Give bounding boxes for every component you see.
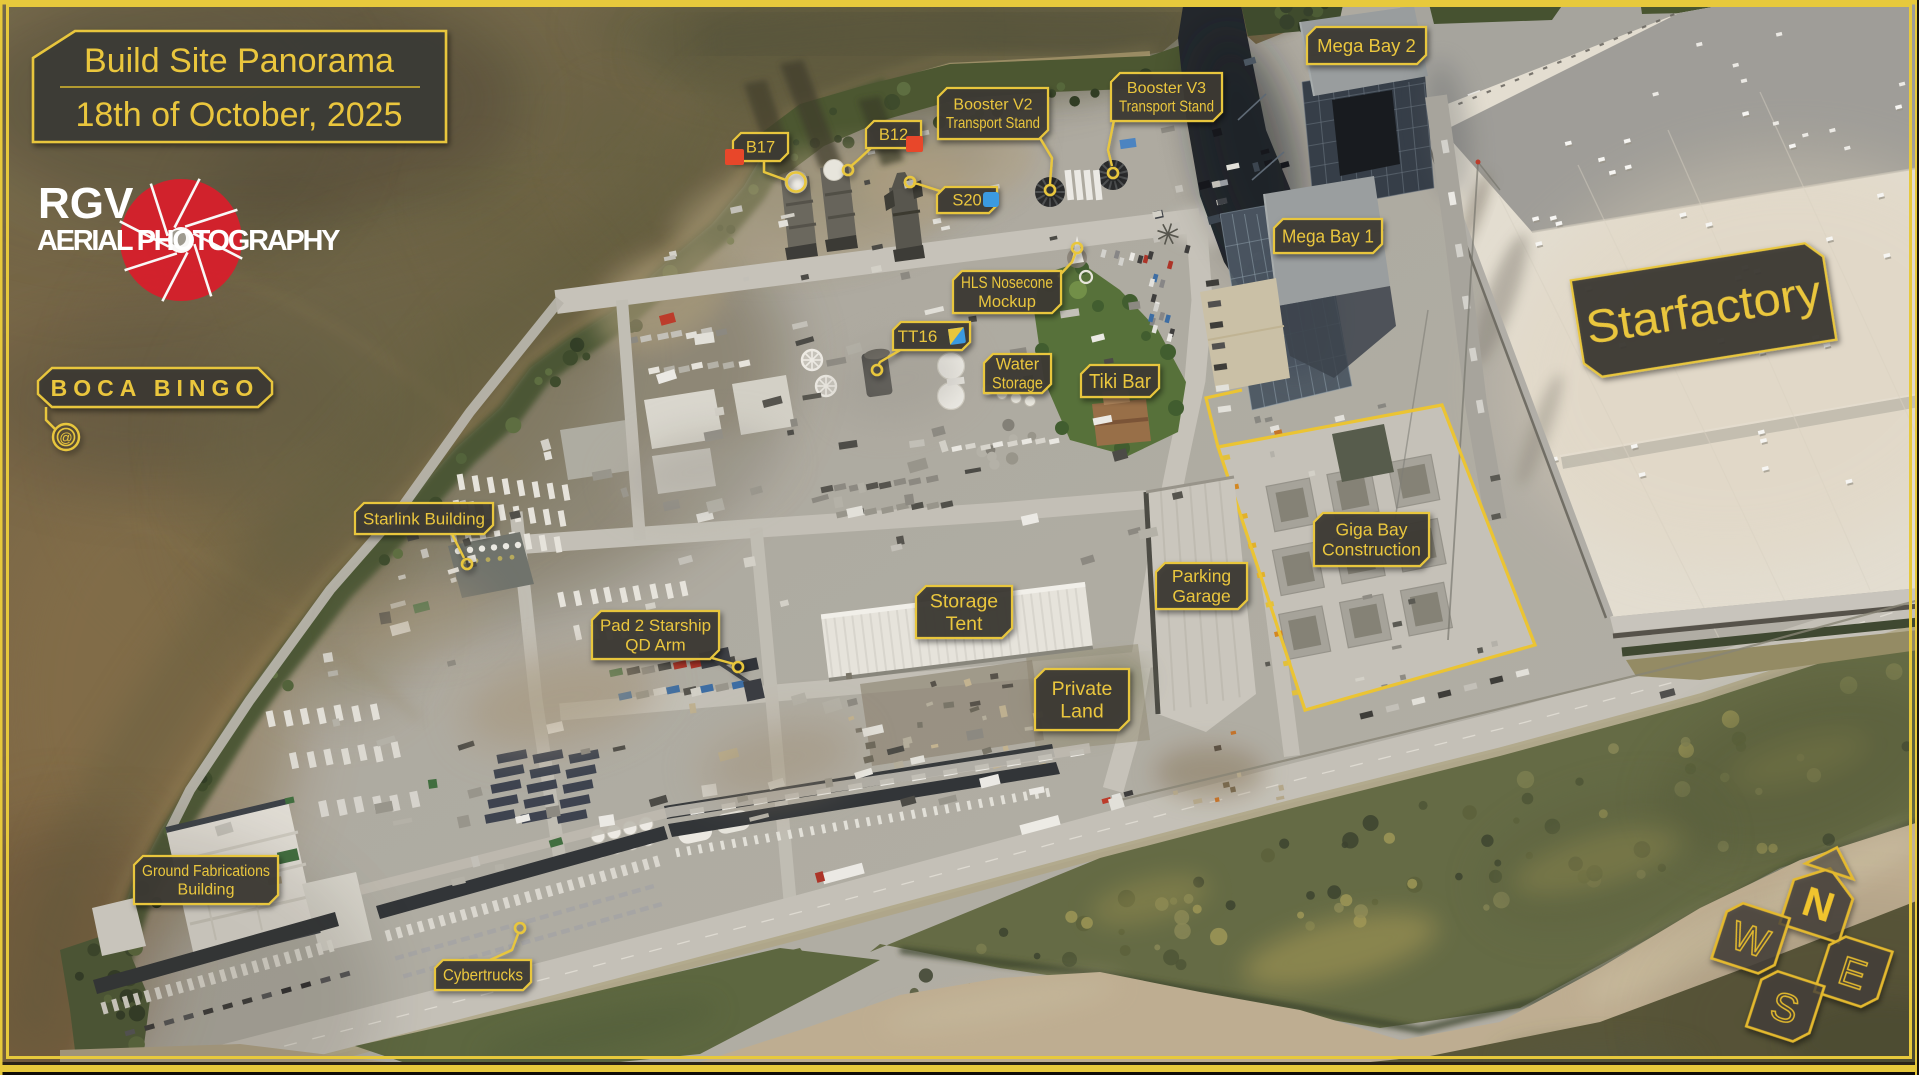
- svg-text:Construction: Construction: [1322, 540, 1421, 560]
- svg-text:Tiki Bar: Tiki Bar: [1089, 371, 1151, 393]
- svg-text:Ground Fabrications: Ground Fabrications: [142, 863, 270, 880]
- svg-text:Water: Water: [996, 356, 1040, 374]
- svg-text:RGV: RGV: [38, 179, 134, 228]
- svg-text:Garage: Garage: [1172, 586, 1230, 606]
- svg-text:18th of October, 2025: 18th of October, 2025: [75, 96, 402, 134]
- svg-text:Land: Land: [1060, 700, 1103, 722]
- svg-text:TT16: TT16: [898, 327, 938, 346]
- svg-text:QD Arm: QD Arm: [625, 636, 685, 655]
- svg-text:Booster V3: Booster V3: [1127, 80, 1206, 97]
- svg-text:Starlink Building: Starlink Building: [363, 509, 485, 528]
- svg-text:BOCA BINGO: BOCA BINGO: [51, 375, 260, 401]
- svg-text:Transport Stand: Transport Stand: [1119, 99, 1214, 116]
- svg-text:Transport Stand: Transport Stand: [946, 115, 1040, 132]
- svg-text:Build Site Panorama: Build Site Panorama: [84, 42, 394, 80]
- svg-text:Building: Building: [178, 882, 235, 899]
- svg-text:Mega Bay 1: Mega Bay 1: [1282, 225, 1374, 246]
- svg-text:@: @: [59, 430, 72, 445]
- svg-text:Mockup: Mockup: [978, 293, 1036, 311]
- svg-text:Mega Bay 2: Mega Bay 2: [1317, 35, 1416, 56]
- svg-text:Tent: Tent: [946, 613, 983, 635]
- svg-text:Cybertrucks: Cybertrucks: [443, 967, 523, 985]
- svg-text:B17: B17: [746, 139, 775, 157]
- svg-text:Booster V2: Booster V2: [953, 97, 1032, 114]
- svg-text:Storage: Storage: [930, 590, 998, 612]
- svg-text:AERIAL PHOTOGRAPHY: AERIAL PHOTOGRAPHY: [37, 225, 340, 257]
- svg-text:S20: S20: [952, 192, 981, 210]
- svg-text:Storage: Storage: [992, 375, 1043, 393]
- svg-text:Pad 2 Starship: Pad 2 Starship: [600, 616, 711, 635]
- svg-text:Giga Bay: Giga Bay: [1336, 519, 1408, 539]
- svg-text:Parking: Parking: [1172, 566, 1231, 586]
- svg-text:B12: B12: [879, 126, 908, 144]
- svg-text:Private: Private: [1052, 678, 1113, 700]
- svg-text:HLS Nosecone: HLS Nosecone: [961, 274, 1053, 292]
